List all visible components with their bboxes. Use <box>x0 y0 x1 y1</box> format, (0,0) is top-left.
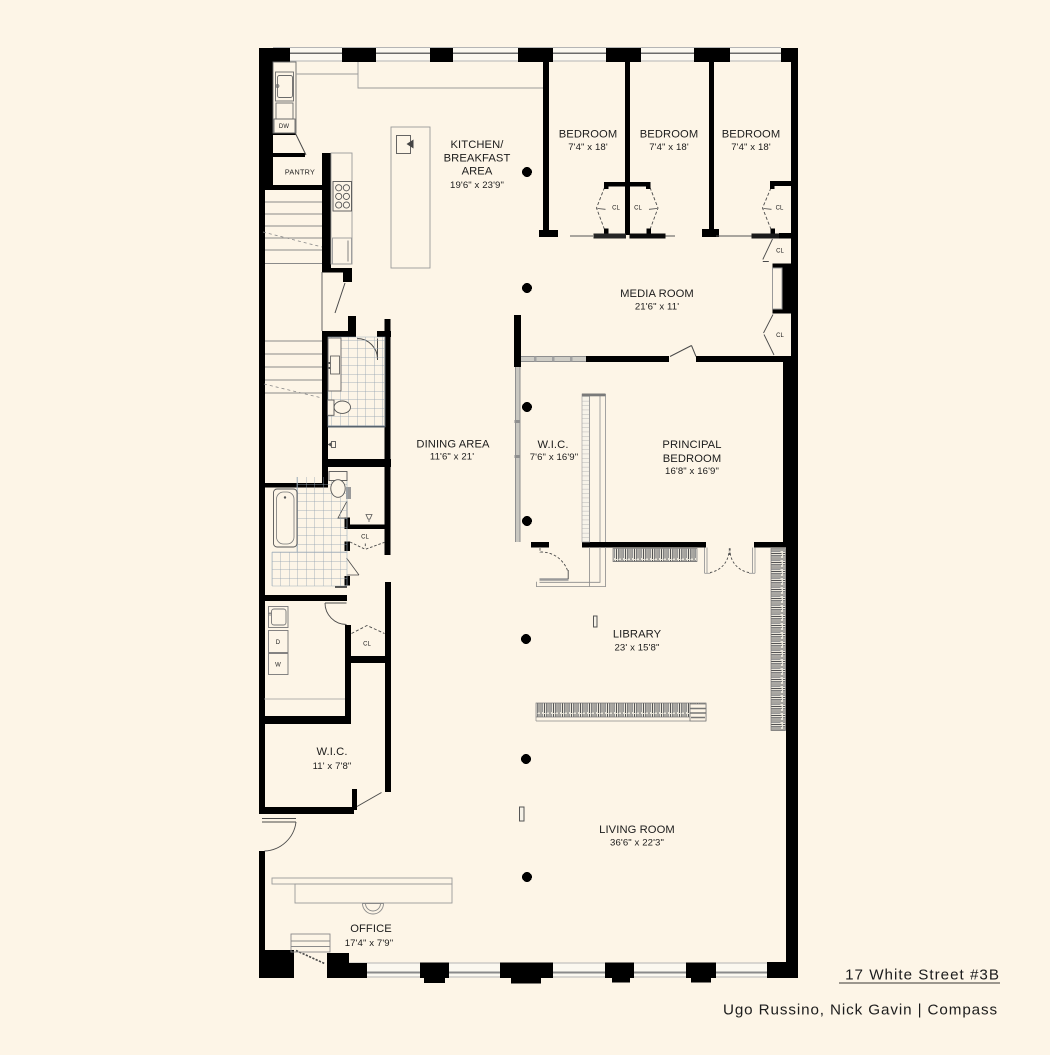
svg-text:21'6" x 11': 21'6" x 11' <box>635 302 679 313</box>
svg-text:PANTRY: PANTRY <box>285 168 315 177</box>
svg-text:7'4" x 18': 7'4" x 18' <box>568 142 608 153</box>
svg-text:BEDROOM: BEDROOM <box>663 453 722 465</box>
svg-text:DW: DW <box>279 124 289 130</box>
svg-text:KITCHEN/: KITCHEN/ <box>450 139 504 151</box>
svg-text:11' x 7'8": 11' x 7'8" <box>313 761 352 772</box>
svg-text:CL: CL <box>776 249 784 255</box>
svg-text:PRINCIPAL: PRINCIPAL <box>662 439 721 451</box>
svg-text:LIBRARY: LIBRARY <box>613 629 662 641</box>
svg-text:CL: CL <box>776 333 784 339</box>
svg-text:BEDROOM: BEDROOM <box>640 129 699 141</box>
svg-text:AREA: AREA <box>462 166 493 178</box>
svg-text:19'6" x 23'9": 19'6" x 23'9" <box>450 180 504 191</box>
svg-text:D: D <box>276 640 281 646</box>
svg-text:CL: CL <box>634 206 642 212</box>
svg-text:OFFICE: OFFICE <box>350 923 392 935</box>
svg-text:LIVING ROOM: LIVING ROOM <box>599 824 675 836</box>
svg-text:17 White Street #3B: 17 White Street #3B <box>845 967 1000 984</box>
svg-text:W: W <box>275 663 281 669</box>
svg-text:11'6" x 21': 11'6" x 21' <box>430 452 474 463</box>
svg-text:BEDROOM: BEDROOM <box>722 129 781 141</box>
svg-text:Ugo Russino, Nick Gavin | Comp: Ugo Russino, Nick Gavin | Compass <box>723 1002 998 1019</box>
svg-text:BREAKFAST: BREAKFAST <box>444 153 511 165</box>
svg-text:CL: CL <box>363 642 371 648</box>
svg-text:CL: CL <box>776 206 784 212</box>
svg-text:7'4" x 18': 7'4" x 18' <box>731 142 771 153</box>
svg-text:DINING AREA: DINING AREA <box>416 439 490 451</box>
svg-text:7'4" x 18': 7'4" x 18' <box>649 142 689 153</box>
svg-text:MEDIA ROOM: MEDIA ROOM <box>620 288 694 300</box>
svg-text:16'8" x 16'9": 16'8" x 16'9" <box>665 466 719 477</box>
svg-text:CL: CL <box>612 206 620 212</box>
svg-text:CL: CL <box>361 535 369 541</box>
svg-text:36'6" x 22'3": 36'6" x 22'3" <box>610 838 664 849</box>
svg-text:BEDROOM: BEDROOM <box>559 129 618 141</box>
svg-text:23' x 15'8": 23' x 15'8" <box>615 643 660 654</box>
svg-text:17'4" x 7'9": 17'4" x 7'9" <box>345 938 393 949</box>
svg-text:7'6" x 16'9": 7'6" x 16'9" <box>530 452 578 463</box>
svg-text:W.I.C.: W.I.C. <box>537 439 568 451</box>
svg-text:W.I.C.: W.I.C. <box>316 746 347 758</box>
